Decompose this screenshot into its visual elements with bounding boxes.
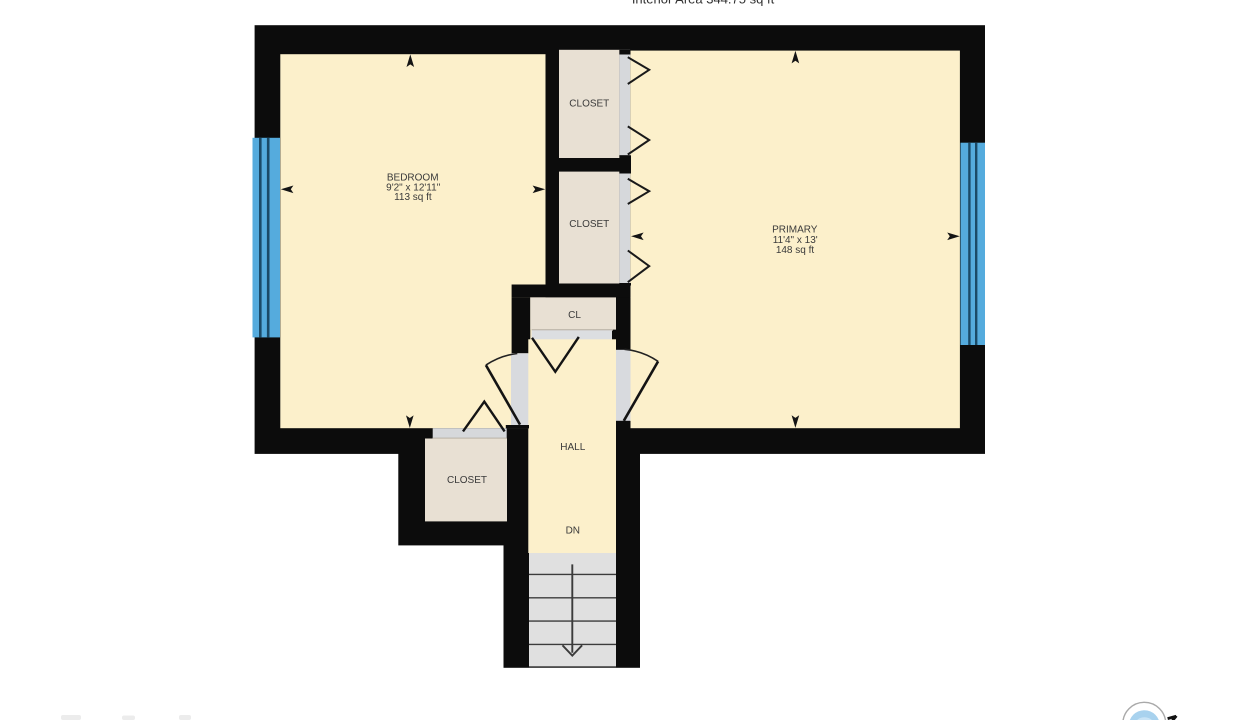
svg-text:CLOSET: CLOSET — [569, 98, 609, 109]
svg-text:CLOSET: CLOSET — [569, 219, 609, 230]
svg-text:Interior Area 344.75 sq ft: Interior Area 344.75 sq ft — [632, 0, 775, 7]
svg-text:CL: CL — [568, 310, 581, 321]
svg-text:HALL: HALL — [560, 442, 585, 453]
svg-text:CLOSET: CLOSET — [447, 475, 487, 486]
svg-text:148 sq ft: 148 sq ft — [776, 245, 815, 256]
svg-text:PRIMARY: PRIMARY — [772, 224, 818, 235]
svg-text:113 sq ft: 113 sq ft — [394, 192, 432, 203]
svg-text:DN: DN — [566, 526, 580, 537]
svg-text:11'4" x 13': 11'4" x 13' — [773, 235, 818, 246]
